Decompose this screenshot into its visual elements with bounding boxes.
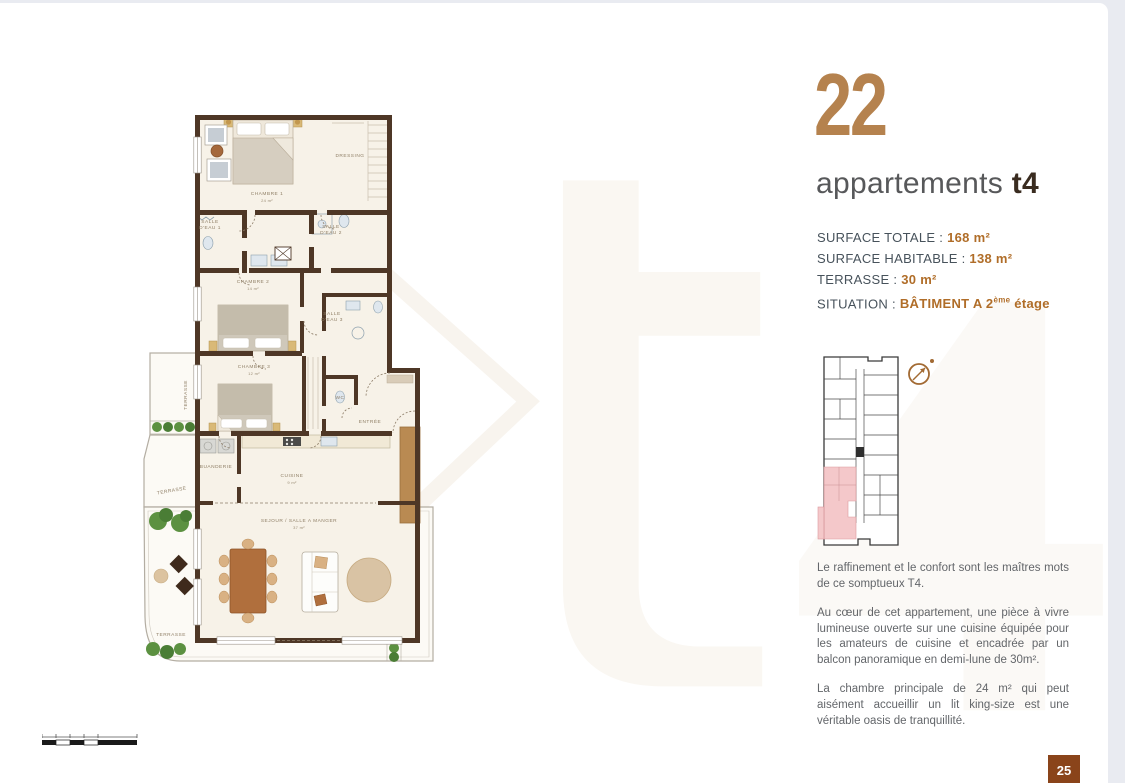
description-paragraph-3: La chambre principale de 24 m² qui peut …: [817, 682, 1069, 730]
room-label-chambre3: CHAMBRE 3: [238, 364, 271, 370]
compass-icon: [903, 355, 937, 389]
spec-situation: SITUATION : BÂTIMENT A 2ème étage: [817, 290, 1050, 314]
brochure-page: { "header": { "unit_number": "22", "titl…: [0, 0, 1125, 783]
svg-text:12 m²: 12 m²: [248, 371, 260, 376]
floor-plan: CHAMBRE 1 24 m² DRESSING SALLED'EAU 1 SA…: [132, 109, 442, 679]
spec-surface-habitable: SURFACE HABITABLE : 138 m²: [817, 248, 1050, 269]
unit-number: 22: [814, 61, 886, 149]
key-plan-shaft: [856, 447, 864, 457]
watermark-letter-t: [563, 180, 762, 686]
room-label-buanderie: BUANDERIE: [200, 464, 233, 470]
room-label-cuisine: CUISINE: [281, 473, 304, 479]
floor-plan-container: CHAMBRE 1 24 m² DRESSING SALLED'EAU 1 SA…: [132, 109, 442, 684]
scale-bar: [42, 733, 142, 751]
room-label-wc: WC: [336, 395, 345, 401]
svg-text:9 m²: 9 m²: [287, 480, 297, 485]
description-paragraph-2: Au cœur de cet appartement, une pièce à …: [817, 606, 1069, 669]
svg-text:14 m²: 14 m²: [247, 286, 259, 291]
description: Le raffinement et le confort sont les ma…: [817, 561, 1069, 743]
room-label-sejour: SEJOUR / SALLE A MANGER: [261, 518, 337, 524]
document-page: t4: [0, 3, 1108, 783]
room-label-terrasse-1: TERRASSE: [183, 380, 189, 410]
svg-text:24 m²: 24 m²: [261, 198, 273, 203]
page-title: appartements t4: [816, 167, 1039, 201]
spec-surface-totale: SURFACE TOTALE : 168 m²: [817, 227, 1050, 248]
spec-terrasse: TERRASSE : 30 m²: [817, 269, 1050, 290]
type-label: t4: [1012, 167, 1039, 200]
specs-list: SURFACE TOTALE : 168 m² SURFACE HABITABL…: [817, 227, 1050, 314]
page-number-badge: 25: [1048, 755, 1080, 783]
title-word: appartements: [816, 167, 1003, 200]
room-label-terrasse-3: TERRASSE: [156, 632, 186, 638]
room-label-dressing: DRESSING: [335, 153, 364, 159]
room-label-chambre2: CHAMBRE 2: [237, 279, 270, 285]
room-label-entree: ENTRÉE: [359, 418, 381, 425]
key-plan: [812, 351, 908, 557]
room-label-chambre1: CHAMBRE 1: [251, 191, 284, 197]
description-paragraph-1: Le raffinement et le confort sont les ma…: [817, 561, 1069, 593]
svg-text:37 m²: 37 m²: [293, 525, 305, 530]
